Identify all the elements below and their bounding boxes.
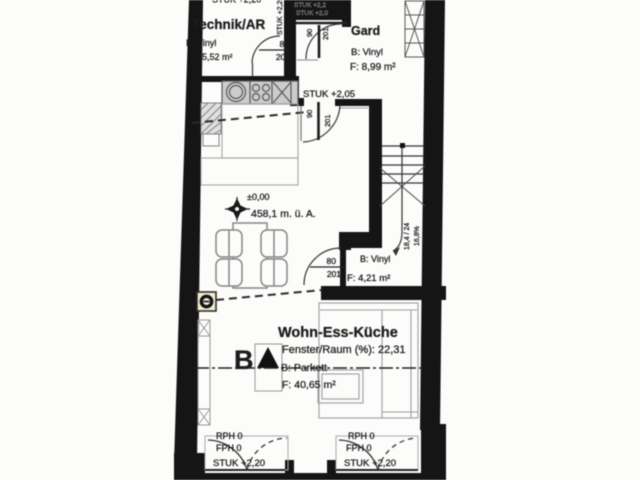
svg-text:B: Vinyl: B: Vinyl — [186, 38, 216, 48]
svg-text:STUK +2,20: STUK +2,20 — [277, 0, 284, 35]
svg-text:STUK +2,20: STUK +2,20 — [212, 0, 261, 5]
svg-text:B: Parkett: B: Parkett — [281, 362, 327, 374]
svg-text:80: 80 — [327, 256, 337, 266]
svg-text:STUK +2,0: STUK +2,0 — [296, 10, 328, 17]
svg-text:FPH 0: FPH 0 — [216, 443, 242, 453]
svg-text:201: 201 — [321, 27, 330, 40]
svg-text:18,4 / 24: 18,4 / 24 — [404, 223, 411, 250]
svg-text:FPH 0: FPH 0 — [346, 443, 372, 453]
svg-text:Wohn-Ess-Küche: Wohn-Ess-Küche — [278, 325, 398, 341]
svg-text:RPH 0: RPH 0 — [348, 431, 375, 441]
svg-text:B: Vinyl: B: Vinyl — [351, 47, 383, 58]
svg-text:RPH 0: RPH 0 — [216, 431, 243, 441]
svg-text:STUK +2,20: STUK +2,20 — [213, 458, 265, 469]
svg-text:201: 201 — [276, 52, 290, 62]
svg-text:STUK +2,20: STUK +2,20 — [344, 458, 396, 469]
svg-text:5,52 m²: 5,52 m² — [202, 52, 233, 62]
svg-text:STUK +2,2: STUK +2,2 — [294, 2, 326, 9]
svg-text:F: 8,99 m²: F: 8,99 m² — [350, 62, 396, 73]
svg-text:16,8%: 16,8% — [414, 226, 421, 246]
svg-text:458,1 m. ü. A.: 458,1 m. ü. A. — [251, 208, 316, 220]
svg-text:80: 80 — [280, 39, 290, 49]
svg-text:F: 4,21 m²: F: 4,21 m² — [347, 273, 390, 284]
svg-text:Fenster/Raum (%): 22,31: Fenster/Raum (%): 22,31 — [282, 344, 406, 356]
svg-text:STUK +2,05: STUK +2,05 — [303, 89, 355, 100]
svg-text:Technik/AR: Technik/AR — [192, 17, 266, 32]
svg-text:90: 90 — [305, 29, 314, 37]
svg-text:B: Vinyl: B: Vinyl — [360, 254, 390, 264]
svg-text:90: 90 — [305, 110, 314, 118]
svg-text:201: 201 — [327, 269, 341, 279]
svg-text:Gard: Gard — [351, 24, 380, 38]
svg-text:201: 201 — [323, 114, 332, 127]
svg-text:±0,00: ±0,00 — [247, 192, 269, 202]
svg-text:F: 40,65 m²: F: 40,65 m² — [282, 379, 336, 391]
svg-text:B: B — [234, 345, 254, 375]
